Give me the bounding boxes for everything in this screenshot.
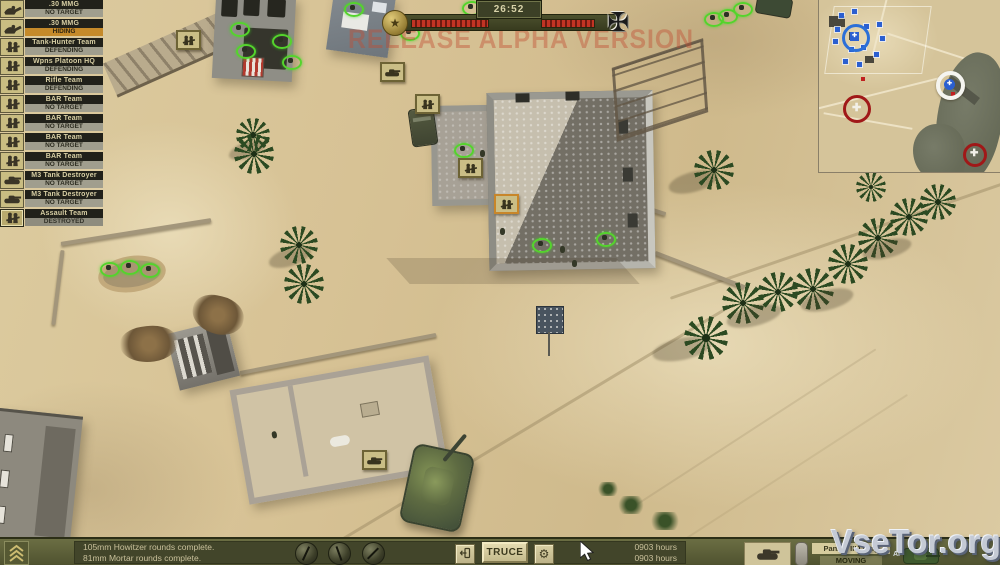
palm-tree: [856, 172, 886, 202]
palm-tree: [684, 316, 728, 360]
unit-row[interactable]: Tank-Hunter Team DEFENDING: [0, 38, 103, 56]
sign-board: [536, 306, 564, 334]
unit-badge-selected[interactable]: [494, 194, 519, 214]
soldier[interactable]: [480, 150, 485, 157]
infantry-icon: [0, 38, 24, 56]
friendly-unit-dot: [835, 27, 840, 32]
unit-row[interactable]: BAR Team NO TARGET: [0, 133, 103, 151]
unit-row[interactable]: BAR Team NO TARGET: [0, 152, 103, 170]
unit-status: DEFENDING: [25, 47, 103, 55]
knob-icon[interactable]: [362, 542, 385, 565]
unit-name: BAR Team: [25, 95, 103, 104]
unit-status: DEFENDING: [25, 66, 103, 74]
friendly-unit-dot: [852, 9, 857, 14]
infantry-icon: [0, 114, 24, 132]
mouse-cursor: [580, 541, 594, 561]
unit-row[interactable]: M3 Tank Destroyer NO TARGET: [0, 171, 103, 189]
minimap-river: [913, 124, 965, 173]
unit-status: NO TARGET: [25, 104, 103, 112]
unit-row[interactable]: M3 Tank Destroyer NO TARGET: [0, 190, 103, 208]
unit-marker[interactable]: [120, 260, 140, 275]
striped-awning: [241, 56, 264, 77]
unit-name: Rifle Team: [25, 76, 103, 85]
friendly-objective-marker: ✚: [842, 24, 870, 52]
unit-name: Wpns Platoon HQ: [25, 57, 103, 66]
battle-timer: 26:52: [477, 1, 541, 18]
unit-name: BAR Team: [25, 152, 103, 161]
unit-name: Tank-Hunter Team: [25, 38, 103, 47]
unit-marker[interactable]: [282, 55, 302, 70]
knob-icon[interactable]: [328, 542, 351, 565]
infantry-icon: [0, 152, 24, 170]
minimap-building: [865, 56, 874, 63]
friendly-unit-dot: [839, 13, 844, 18]
unit-row[interactable]: Wpns Platoon HQ DEFENDING: [0, 57, 103, 75]
rank-chevrons-icon[interactable]: [4, 541, 29, 565]
unit-marker[interactable]: [272, 34, 292, 49]
unit-status: NO TARGET: [25, 180, 103, 188]
unit-row[interactable]: .30 MMG NO TARGET: [0, 0, 103, 18]
truce-button[interactable]: TRUCE: [482, 542, 528, 563]
ammo-capsule-icon: [795, 542, 808, 565]
palm-tree: [234, 134, 274, 174]
unit-status: DESTROYED: [25, 218, 103, 226]
unit-row[interactable]: BAR Team NO TARGET: [0, 114, 103, 132]
unit-name: BAR Team: [25, 133, 103, 142]
friendly-unit-dot: [880, 36, 885, 41]
building-shadow: [386, 258, 639, 284]
bush: [616, 496, 646, 514]
unit-marker[interactable]: [100, 262, 120, 277]
friendly-unit-dot: [877, 22, 882, 27]
message-time: 0903 hours: [634, 553, 677, 563]
palm-tree: [284, 264, 324, 304]
vehicle-icon: [0, 171, 24, 189]
unit-status: NO TARGET: [25, 142, 103, 150]
friendly-unit-dot: [874, 52, 879, 57]
infantry-icon: [0, 57, 24, 75]
friendly-unit-dot: [833, 39, 838, 44]
unit-badge[interactable]: [176, 30, 201, 50]
unit-badge[interactable]: [458, 158, 483, 178]
corner-building: [0, 408, 83, 555]
soldier[interactable]: [572, 260, 577, 267]
unit-status: NO TARGET: [25, 123, 103, 131]
enemy-objective-marker: ✚: [963, 143, 987, 167]
unit-marker[interactable]: [596, 232, 616, 247]
unit-row[interactable]: Assault Team DESTROYED: [0, 209, 103, 227]
friendly-unit-dot: [857, 62, 862, 67]
vehicle-icon: [0, 190, 24, 208]
unit-name: BAR Team: [25, 114, 103, 123]
unit-name: M3 Tank Destroyer: [25, 171, 103, 180]
unit-status: HIDING: [25, 28, 103, 36]
unit-status: NO TARGET: [25, 199, 103, 207]
unit-roster: .30 MMG NO TARGET .30 MMG HIDING Tank-Hu…: [0, 0, 103, 228]
unit-marker[interactable]: [532, 238, 552, 253]
sign-pole: [548, 332, 550, 356]
game-screen: RELEASE ALPHA VERSION 26:52 ★ ✠ .30 MMG …: [0, 0, 1000, 565]
settings-button[interactable]: ⚙: [534, 544, 554, 564]
infantry-icon: [0, 95, 24, 113]
contested-objective-marker: ✚: [936, 71, 965, 100]
soldier[interactable]: [500, 228, 505, 235]
infantry-icon: [0, 76, 24, 94]
soldier[interactable]: [271, 431, 277, 439]
infantry-icon: [0, 133, 24, 151]
unit-marker[interactable]: [733, 2, 753, 17]
friendly-unit-dot: [843, 59, 848, 64]
unit-marker[interactable]: [140, 263, 160, 278]
mg-team-icon: [0, 0, 24, 18]
unit-status: NO TARGET: [25, 161, 103, 169]
exit-button[interactable]: [455, 544, 475, 564]
unit-name: .30 MMG: [25, 0, 103, 9]
bush: [648, 512, 682, 530]
enemy-unit-dot: [861, 77, 865, 81]
axis-strength-bar: [541, 19, 595, 28]
palm-tree: [694, 150, 734, 190]
unit-row[interactable]: BAR Team NO TARGET: [0, 95, 103, 113]
iron-cross-icon: ✠: [607, 8, 629, 36]
bush: [596, 482, 620, 496]
unit-row[interactable]: .30 MMG HIDING: [0, 19, 103, 37]
unit-name: M3 Tank Destroyer: [25, 190, 103, 199]
mg-team-icon: [0, 19, 24, 37]
unit-badge[interactable]: [380, 62, 405, 82]
palm-tree: [280, 226, 318, 264]
unit-status: NO TARGET: [25, 9, 103, 17]
unit-name: .30 MMG: [25, 19, 103, 28]
allied-strength-bar: [411, 19, 489, 28]
soldier[interactable]: [560, 246, 565, 253]
palm-tree: [920, 184, 956, 220]
knob-icon[interactable]: [295, 542, 318, 565]
message-time: 0903 hours: [634, 542, 677, 552]
unit-marker[interactable]: [236, 44, 256, 59]
message-text: 105mm Howitzer rounds complete.: [83, 542, 214, 552]
selected-unit-thumbnail[interactable]: [744, 542, 791, 565]
enemy-objective-marker: ✚: [843, 95, 871, 123]
site-watermark: VseTor.org: [831, 523, 1000, 561]
message-text: 81mm Mortar rounds complete.: [83, 553, 201, 563]
unit-name: Assault Team: [25, 209, 103, 218]
gear-icon: ⚙: [539, 547, 550, 561]
infantry-icon: [0, 209, 24, 227]
unit-badge[interactable]: [362, 450, 387, 470]
unit-marker[interactable]: [230, 22, 250, 37]
unit-marker[interactable]: [454, 143, 474, 158]
unit-row[interactable]: Rifle Team DEFENDING: [0, 76, 103, 94]
minimap[interactable]: ✚ ✚ ✚ ✚: [818, 0, 1000, 173]
unit-status: DEFENDING: [25, 85, 103, 93]
us-star-icon: ★: [382, 10, 408, 36]
unit-marker[interactable]: [344, 2, 364, 17]
unit-badge[interactable]: [415, 94, 440, 114]
